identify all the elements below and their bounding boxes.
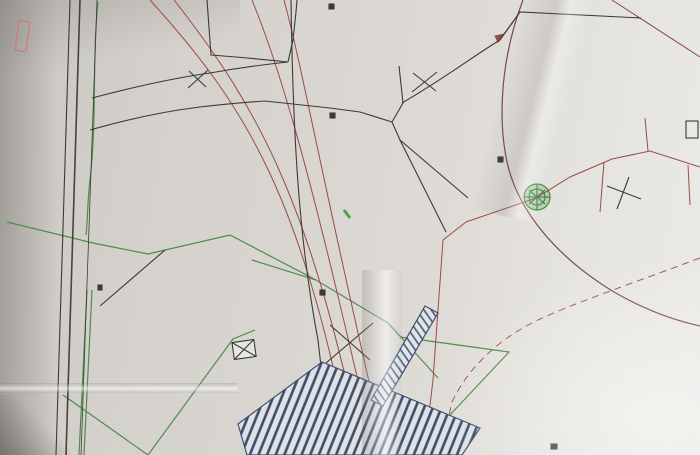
parcel-divider [100,250,165,306]
green-mark [344,210,350,218]
ravine-cross [607,177,641,209]
road-edge-south [90,101,392,130]
ravine-top-edge [7,222,316,280]
borne-marker [498,157,503,162]
dashed-boundary [448,258,700,455]
cadastral-plan-photo [0,0,700,455]
borne-marker [330,113,335,118]
hatched-structures [238,306,480,455]
sentier-step-edge [81,0,97,455]
fence-drops [600,118,690,212]
cross-mark [188,70,208,88]
sheet-edge-hachure [612,0,700,57]
box-symbol [686,121,698,138]
hedge-line [86,2,98,235]
crossed-box-symbol [232,340,256,360]
borne-marker [329,4,334,9]
road-edge-north [92,62,288,98]
borne-marker [551,444,557,449]
parcel5-green-boundary [63,330,255,455]
parcel8-boundary [392,66,446,232]
parcel8-diagonal [400,140,468,198]
hatched-building [238,362,480,455]
map-linework [0,0,700,455]
stairs-hatch [371,306,438,406]
canal-lines [79,290,92,455]
purple-contour [502,0,700,326]
parcel7-boundary [402,12,641,103]
borne-marker [320,290,325,295]
stamp-rectangle [15,20,30,51]
borne-marker [98,285,102,290]
vegetation-lines-green [7,2,550,455]
cable-lines-red [150,0,700,455]
parcel-divider [207,0,288,62]
